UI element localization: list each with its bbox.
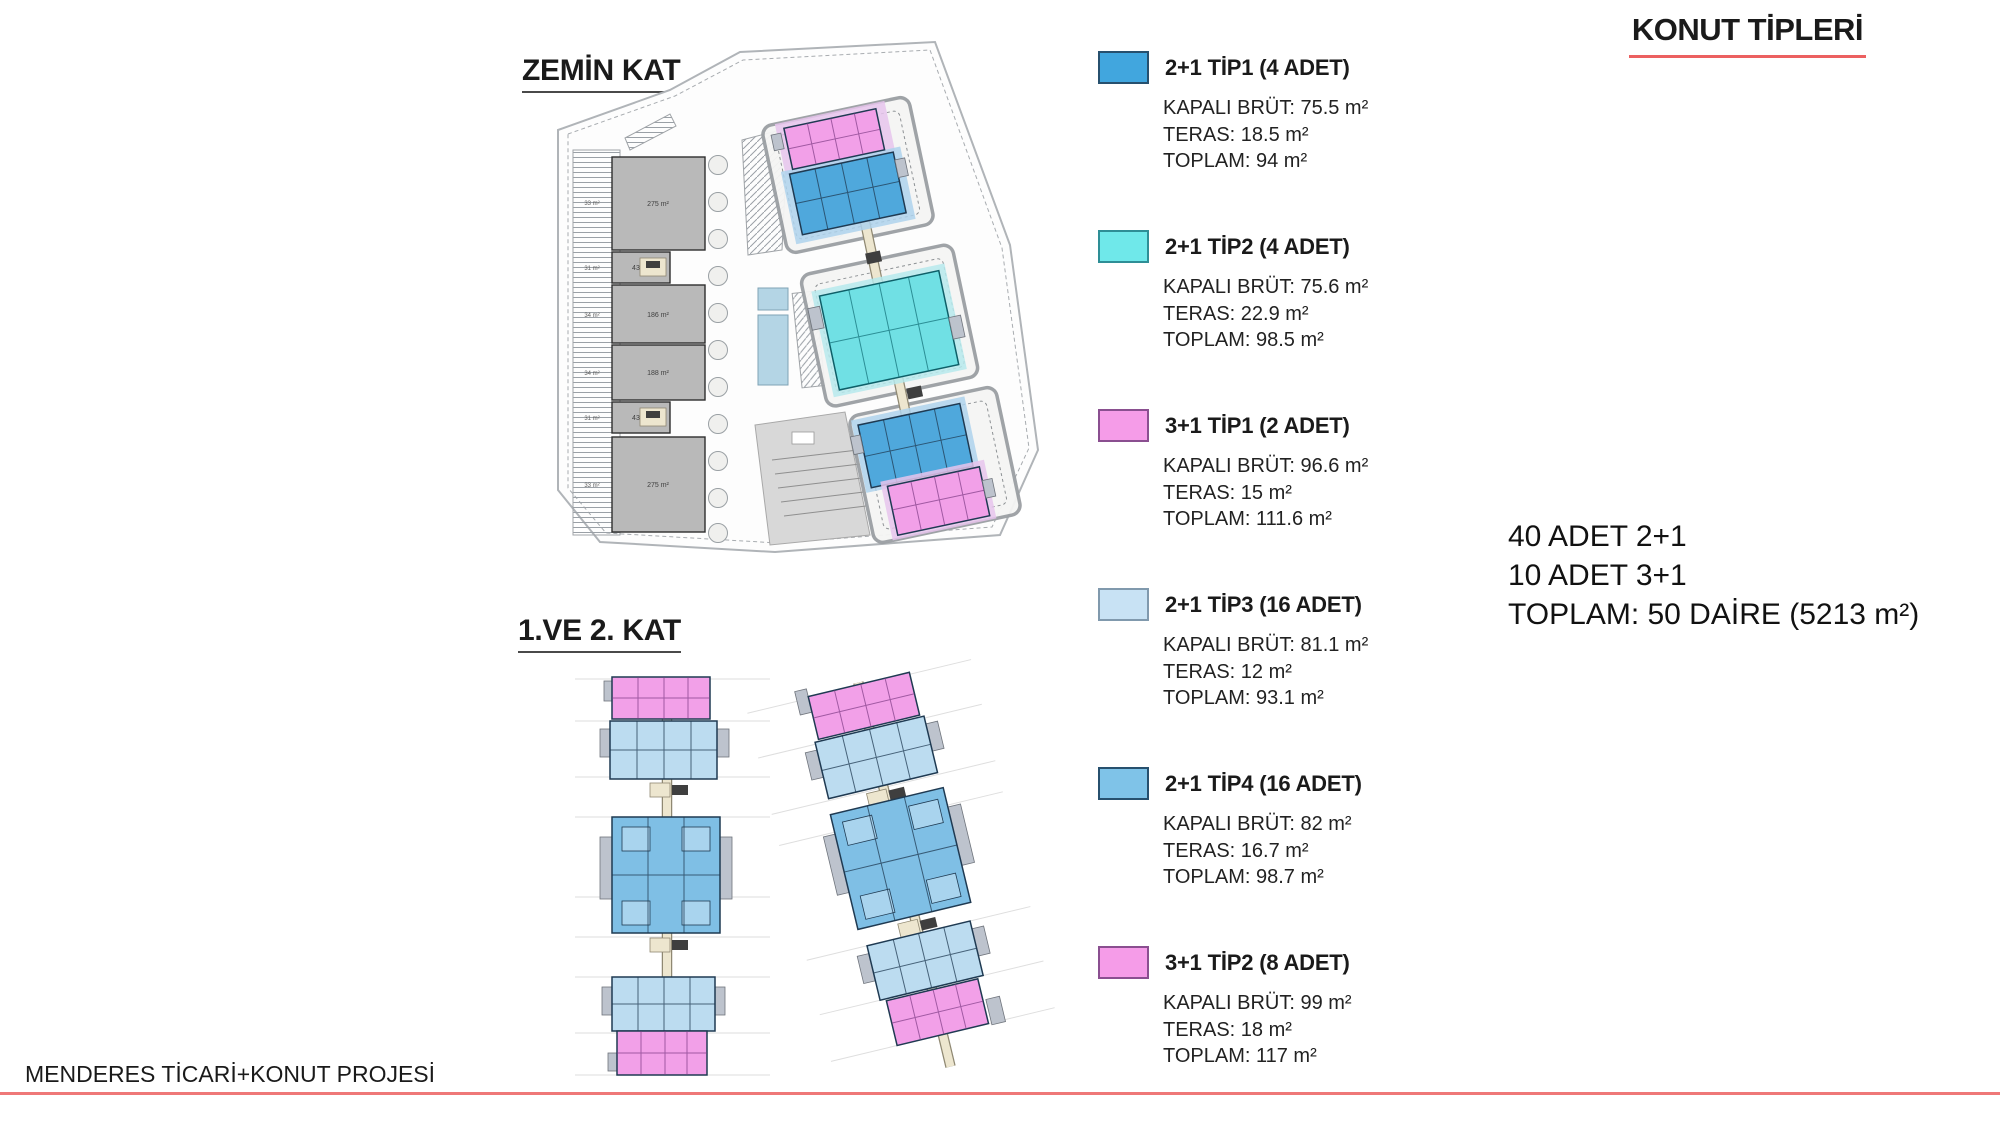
- toplam: TOPLAM: 98.5 m²: [1163, 327, 1478, 354]
- kapali-brut: KAPALI BRÜT: 75.6 m²: [1163, 274, 1478, 301]
- strip-area-label: 33 m²: [584, 483, 599, 489]
- slide: KONUT TİPLERİ ZEMİN KAT 1.VE 2. KAT: [0, 0, 2000, 1123]
- kapali-brut: KAPALI BRÜT: 81.1 m²: [1163, 632, 1478, 659]
- legend-title: 3+1 TİP1 (2 ADET): [1165, 413, 1350, 439]
- legend-item-2-1-tip2: 2+1 TİP2 (4 ADET) KAPALI BRÜT: 75.6 m² T…: [1098, 230, 1478, 354]
- legend-item-2-1-tip3: 2+1 TİP3 (16 ADET) KAPALI BRÜT: 81.1 m² …: [1098, 588, 1478, 712]
- total-daire: TOPLAM: 50 DAİRE (5213 m²): [1508, 595, 1919, 634]
- legend-swatch-2-1-tip1: [1098, 51, 1149, 84]
- legend-details: KAPALI BRÜT: 75.6 m² TERAS: 22.9 m² TOPL…: [1163, 274, 1478, 354]
- legend-swatch-2-1-tip2: [1098, 230, 1149, 263]
- toplam: TOPLAM: 111.6 m²: [1163, 506, 1478, 533]
- legend-item-2-1-tip4: 2+1 TİP4 (16 ADET) KAPALI BRÜT: 82 m² TE…: [1098, 767, 1478, 891]
- strip-area-label: 31 m²: [584, 416, 599, 422]
- teras: TERAS: 22.9 m²: [1163, 301, 1478, 328]
- total-2plus1: 40 ADET 2+1: [1508, 517, 1919, 556]
- legend-swatch-3-1-tip1: [1098, 409, 1149, 442]
- kapali-brut: KAPALI BRÜT: 96.6 m²: [1163, 453, 1478, 480]
- legend-details: KAPALI BRÜT: 81.1 m² TERAS: 12 m² TOPLAM…: [1163, 632, 1478, 712]
- project-name: MENDERES TİCARİ+KONUT PROJESİ: [25, 1061, 435, 1088]
- kapali-brut: KAPALI BRÜT: 82 m²: [1163, 811, 1478, 838]
- teras: TERAS: 12 m²: [1163, 659, 1478, 686]
- legend-swatch-3-1-tip2: [1098, 946, 1149, 979]
- toplam: TOPLAM: 117 m²: [1163, 1043, 1478, 1070]
- legend-item-3-1-tip1: 3+1 TİP1 (2 ADET) KAPALI BRÜT: 96.6 m² T…: [1098, 409, 1478, 533]
- legend-details: KAPALI BRÜT: 99 m² TERAS: 18 m² TOPLAM: …: [1163, 990, 1478, 1070]
- legend-title: 2+1 TİP4 (16 ADET): [1165, 771, 1362, 797]
- legend-title: 2+1 TİP1 (4 ADET): [1165, 55, 1350, 81]
- legend-item-2-1-tip1: 2+1 TİP1 (4 ADET) KAPALI BRÜT: 75.5 m² T…: [1098, 51, 1478, 175]
- kapali-brut: KAPALI BRÜT: 75.5 m²: [1163, 95, 1478, 122]
- shop-area-label: 186 m²: [647, 312, 669, 319]
- legend-details: KAPALI BRÜT: 96.6 m² TERAS: 15 m² TOPLAM…: [1163, 453, 1478, 533]
- teras: TERAS: 18.5 m²: [1163, 122, 1478, 149]
- total-3plus1: 10 ADET 3+1: [1508, 556, 1919, 595]
- legend-item-3-1-tip2: 3+1 TİP2 (8 ADET) KAPALI BRÜT: 99 m² TER…: [1098, 946, 1478, 1070]
- tower-left: [575, 677, 770, 1075]
- page-title-wrap: KONUT TİPLERİ: [1629, 12, 1866, 58]
- footer-rule: [0, 1092, 2000, 1095]
- shop-area-label: 188 m²: [647, 370, 669, 377]
- legend-title: 3+1 TİP2 (8 ADET): [1165, 950, 1350, 976]
- tower-right: [745, 650, 1060, 1094]
- upper-floor-plans: [560, 645, 1060, 1095]
- totals-summary: 40 ADET 2+1 10 ADET 3+1 TOPLAM: 50 DAİRE…: [1508, 517, 1919, 634]
- teras: TERAS: 18 m²: [1163, 1017, 1478, 1044]
- shop-area-label: 275 m²: [647, 482, 669, 489]
- legend-swatch-2-1-tip4: [1098, 767, 1149, 800]
- legend: 2+1 TİP1 (4 ADET) KAPALI BRÜT: 75.5 m² T…: [1098, 51, 1478, 1121]
- shop-area-label: 275 m²: [647, 201, 669, 208]
- teras: TERAS: 15 m²: [1163, 480, 1478, 507]
- page-title: KONUT TİPLERİ: [1629, 12, 1866, 58]
- pool: [758, 288, 788, 385]
- legend-swatch-2-1-tip3: [1098, 588, 1149, 621]
- toplam: TOPLAM: 98.7 m²: [1163, 864, 1478, 891]
- teras: TERAS: 16.7 m²: [1163, 838, 1478, 865]
- strip-area-label: 34 m²: [584, 371, 599, 377]
- legend-details: KAPALI BRÜT: 82 m² TERAS: 16.7 m² TOPLAM…: [1163, 811, 1478, 891]
- ground-floor-plan: 275 m² 43 m² 186 m² 188 m² 43 m² 275 m² …: [540, 30, 1050, 575]
- legend-title: 2+1 TİP3 (16 ADET): [1165, 592, 1362, 618]
- strip-area-label: 33 m²: [584, 201, 599, 207]
- toplam: TOPLAM: 94 m²: [1163, 148, 1478, 175]
- strip-area-label: 34 m²: [584, 313, 599, 319]
- strip-area-label: 31 m²: [584, 266, 599, 272]
- toplam: TOPLAM: 93.1 m²: [1163, 685, 1478, 712]
- legend-title: 2+1 TİP2 (4 ADET): [1165, 234, 1350, 260]
- kapali-brut: KAPALI BRÜT: 99 m²: [1163, 990, 1478, 1017]
- legend-details: KAPALI BRÜT: 75.5 m² TERAS: 18.5 m² TOPL…: [1163, 95, 1478, 175]
